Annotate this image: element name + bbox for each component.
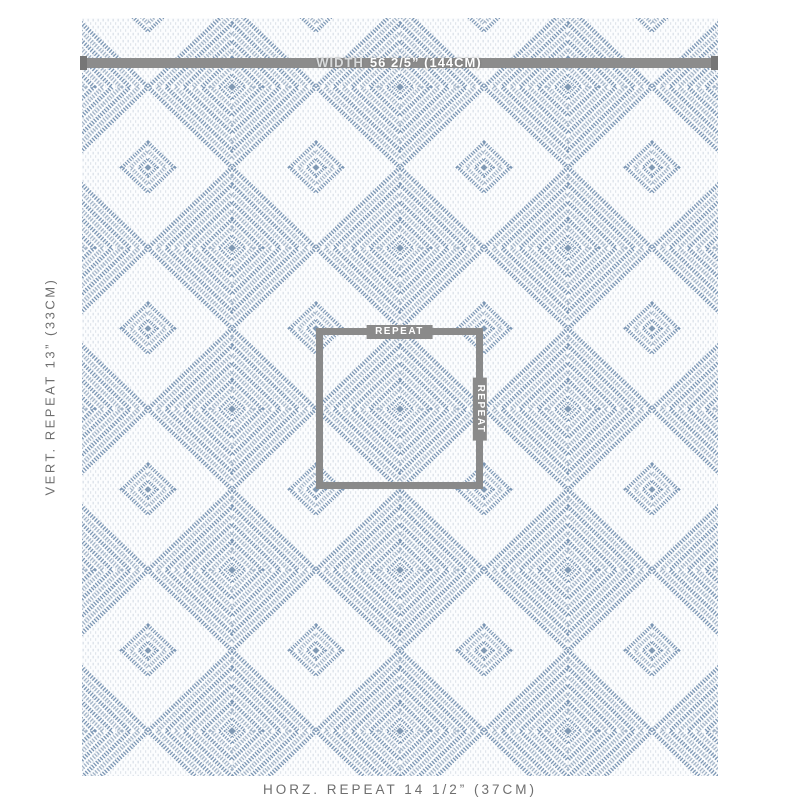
vertical-repeat-label: VERT. REPEAT 13” (33CM) — [43, 296, 58, 496]
width-measure-label: WIDTH56 2/5” (144CM) — [80, 55, 718, 71]
repeat-box: REPEAT REPEAT — [316, 328, 483, 489]
fabric-product-image: WIDTH56 2/5” (144CM) REPEAT REPEAT VERT.… — [0, 0, 800, 800]
repeat-box-top-label: REPEAT — [366, 325, 433, 339]
width-label-prefix: WIDTH — [316, 55, 364, 70]
width-label-value: 56 2/5” (144CM) — [370, 55, 482, 70]
horizontal-repeat-label: HORZ. REPEAT 14 1/2” (37CM) — [0, 782, 800, 797]
repeat-box-side-label: REPEAT — [473, 377, 487, 440]
